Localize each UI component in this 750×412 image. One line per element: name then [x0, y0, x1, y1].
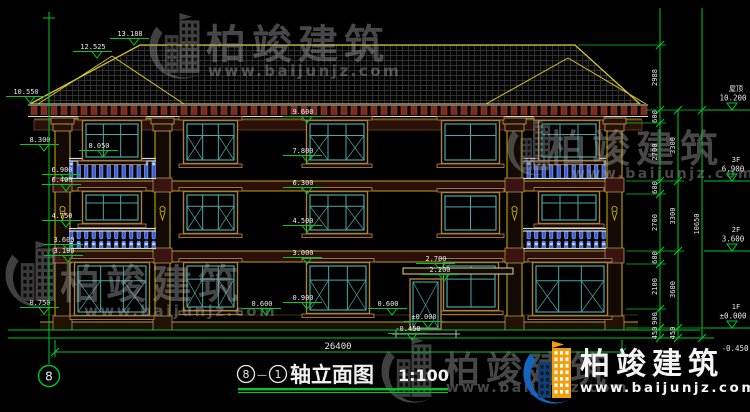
dim-text: 4.500 [292, 217, 313, 225]
dim-text: 10.200 [719, 94, 747, 103]
window [528, 259, 612, 320]
elevation-marker: 0.600 [368, 300, 407, 315]
balcony-railing-left-2f [69, 229, 156, 249]
elevation-drawing: 柏竣建筑www.baijunjz.com柏竣建筑www.baijunjz.com… [0, 0, 750, 412]
watermark-brand-text: 柏竣建筑 [580, 347, 724, 382]
watermark-url-text: www.baijunjz.com [208, 62, 401, 80]
drawing-title: 8 — 1 轴立面图 1:100 [238, 363, 449, 393]
dim-text: 9.600 [292, 108, 313, 116]
elevation-marker: 8.300 [20, 136, 59, 151]
dim-text: ±0.000 [719, 312, 747, 321]
window [78, 188, 146, 228]
watermark-url-text: www.baijunjz.com [580, 380, 750, 396]
dim-text: 450 [651, 327, 659, 340]
window [534, 188, 604, 228]
dim-text: 2F [732, 226, 740, 234]
dim-text: 0.600 [377, 300, 398, 308]
dim-text: 4.750 [51, 212, 72, 220]
watermark-url-text: www.baijunjz.com [84, 302, 277, 320]
title-scale: 1:100 [398, 366, 449, 385]
dim-text: 0.600 [251, 300, 272, 308]
level-flag: 屋顶10.200 [704, 85, 750, 110]
window [302, 117, 372, 168]
level-flag: -0.450 [721, 344, 749, 353]
dim-text: 6.300 [292, 179, 313, 187]
dim-text: 3.600 [722, 235, 745, 244]
dim-text: 6.900 [722, 165, 745, 174]
dim-text: 2100 [651, 278, 659, 295]
dim-text: 600 [651, 181, 659, 194]
window [302, 188, 372, 238]
title-separator: — [257, 370, 267, 381]
dim-text: 3600 [669, 281, 677, 298]
watermark-colored: 柏竣建筑www.baijunjz.com [523, 341, 750, 404]
watermark-brand-text: 柏竣建筑 [548, 127, 724, 171]
window [302, 259, 374, 318]
window [179, 117, 242, 168]
dim-text: 7.800 [292, 147, 313, 155]
window [437, 189, 504, 238]
dim-text: 0.750 [29, 299, 50, 307]
dim-text: 2.700 [425, 255, 446, 263]
dim-text: 2.200 [429, 266, 450, 274]
dim-text: 6.900 [51, 166, 72, 174]
window [78, 117, 146, 165]
dim-text: 3300 [669, 208, 677, 225]
dim-text: -0.450 [395, 325, 420, 333]
dim-text: 2700 [651, 144, 659, 161]
entrance-canopy [403, 268, 513, 274]
dim-text: 10.550 [13, 88, 38, 96]
dim-text: 屋顶 [729, 85, 743, 93]
dim-text: 12.525 [80, 43, 105, 51]
dim-text: ±0.000 [411, 313, 436, 321]
level-flag: 2F3.600 [704, 226, 750, 251]
brand-watermark-colored: 柏竣建筑www.baijunjz.com [523, 341, 750, 404]
level-flag: 1F±0.000 [704, 303, 750, 328]
dim-text: 900 [651, 312, 659, 325]
window [179, 188, 242, 238]
dim-text: 600 [651, 110, 659, 123]
dim-text: 3.000 [292, 249, 313, 257]
dim-text: 3.100 [53, 247, 74, 255]
dim-text: 6.400 [51, 176, 72, 184]
watermark: 柏竣建筑www.baijunjz.com [149, 13, 401, 80]
dim-text: 8.050 [88, 142, 109, 150]
dim-text: 1F [732, 303, 740, 311]
cad-elevation-screenshot: 柏竣建筑www.baijunjz.com柏竣建筑www.baijunjz.com… [0, 0, 750, 412]
dim-text: 0.900 [292, 294, 313, 302]
dim-text: 13.188 [117, 30, 142, 38]
dim-text: 450 [669, 327, 677, 340]
dim-text: 3F [732, 156, 740, 164]
dim-text: 3.600 [53, 236, 74, 244]
title-axis-to: 1 [275, 368, 282, 381]
title-underline-thick [238, 388, 448, 390]
dim-text: 3300 [669, 137, 677, 154]
dim-text: -0.450 [721, 344, 749, 353]
dim-text: 2988 [651, 69, 659, 86]
overall-width-value: 26400 [324, 342, 351, 352]
dim-text: 2700 [651, 214, 659, 231]
dim-text: 8.300 [29, 136, 50, 144]
window [437, 117, 504, 168]
balcony-railing-right-2f [523, 229, 606, 249]
elevation-marker: 12.525 [73, 43, 112, 58]
elevation-marker: 13.188 [110, 30, 149, 45]
axis-bubble-label: 8 [45, 370, 53, 384]
title-axis-from: 8 [243, 368, 250, 381]
dim-text: 10650 [693, 213, 701, 234]
dim-text: 600 [651, 251, 659, 264]
title-text: 轴立面图 [290, 363, 374, 387]
dentil-row [28, 106, 648, 115]
